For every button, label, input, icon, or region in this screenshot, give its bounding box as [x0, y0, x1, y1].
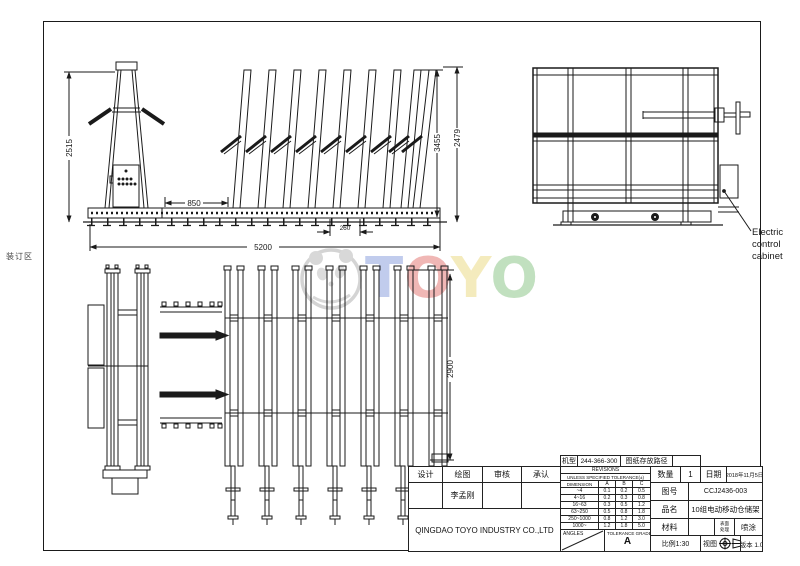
- plan-view-linework: [88, 265, 454, 525]
- material-value: [688, 518, 715, 536]
- projection-symbol-icon: [719, 537, 741, 550]
- bottom-rail: [83, 208, 447, 226]
- electric-cabinet-box: [720, 165, 738, 198]
- title-block: 机型 244-366-300 图纸存放路径 设计 绘图 审核 承认 李孟刚 QI…: [408, 449, 763, 552]
- side-view: Electric control cabinet: [523, 55, 800, 270]
- design-label: 设计: [408, 466, 443, 483]
- qty-value: 1: [680, 466, 701, 483]
- angles-cell: ANGLES: [560, 529, 605, 552]
- dim-260: 260: [340, 225, 351, 232]
- dim-2479: 2479: [453, 129, 462, 147]
- front-elevation-view: 2515 850 260 5200 3455 2479: [55, 48, 475, 263]
- product-name-value: 10组电动移动仓储架: [688, 500, 763, 519]
- view-label: 视图: [703, 539, 717, 549]
- design-value: [408, 482, 443, 509]
- surface-treatment-value: 喷涂: [734, 518, 763, 536]
- scale-cell: 比例1:30: [650, 535, 701, 552]
- material-label: 材料: [650, 518, 689, 536]
- plan-middle-arms: [160, 302, 228, 428]
- crank-shaft: [643, 102, 750, 134]
- surface-label-line2: 处理: [720, 527, 729, 533]
- check-value: [482, 482, 522, 509]
- cabinet-callout-line3: cabinet: [752, 251, 783, 262]
- tolerance-grade-value: A: [624, 536, 631, 547]
- date-value: 2018年11月5日: [726, 466, 763, 483]
- plan-rack-carriages: [224, 266, 448, 466]
- angles-diagonal: [561, 530, 604, 551]
- plan-guide-tails: [226, 466, 410, 525]
- draw-value: 李孟刚: [442, 482, 483, 509]
- plan-view: 2900: [70, 262, 465, 547]
- rack-posts: [221, 70, 436, 208]
- a-frame-tower: [88, 62, 164, 218]
- dim-3455: 3455: [433, 134, 442, 152]
- dim-850: 850: [187, 199, 201, 208]
- cabinet-callout-line1: Electric: [752, 227, 783, 238]
- side-view-linework: [533, 68, 751, 231]
- front-view-linework: [64, 62, 463, 251]
- dim-2515: 2515: [65, 139, 74, 157]
- tolerance-grade-cell: TOLERANCE GRADE A: [604, 529, 651, 552]
- product-name-label: 品名: [650, 500, 689, 519]
- plan-left-unit: [88, 265, 150, 494]
- dim-5200: 5200: [254, 243, 272, 252]
- qty-label: 数量: [650, 466, 681, 483]
- drawing-no-label: 图号: [650, 482, 689, 501]
- check-label: 审核: [482, 466, 522, 483]
- approve-label: 承认: [521, 466, 561, 483]
- surface-treatment-label: 表面 处理: [714, 518, 735, 536]
- cabinet-callout-line2: control: [752, 239, 781, 250]
- version-cell: 版本 1.0: [740, 535, 763, 552]
- drawing-no-value: CCJ2436-003: [688, 482, 763, 501]
- view-symbol-cell: 视图: [700, 535, 741, 552]
- approve-value: [521, 482, 561, 509]
- company-name: QINGDAO TOYO INDUSTRY CO.,LTD: [408, 508, 561, 552]
- draw-label: 绘图: [442, 466, 483, 483]
- dim-2900: 2900: [446, 360, 455, 378]
- binding-area-label: 装订区: [6, 251, 33, 262]
- drawing-sheet: 装订区: [0, 0, 800, 566]
- date-label: 日期: [700, 466, 727, 483]
